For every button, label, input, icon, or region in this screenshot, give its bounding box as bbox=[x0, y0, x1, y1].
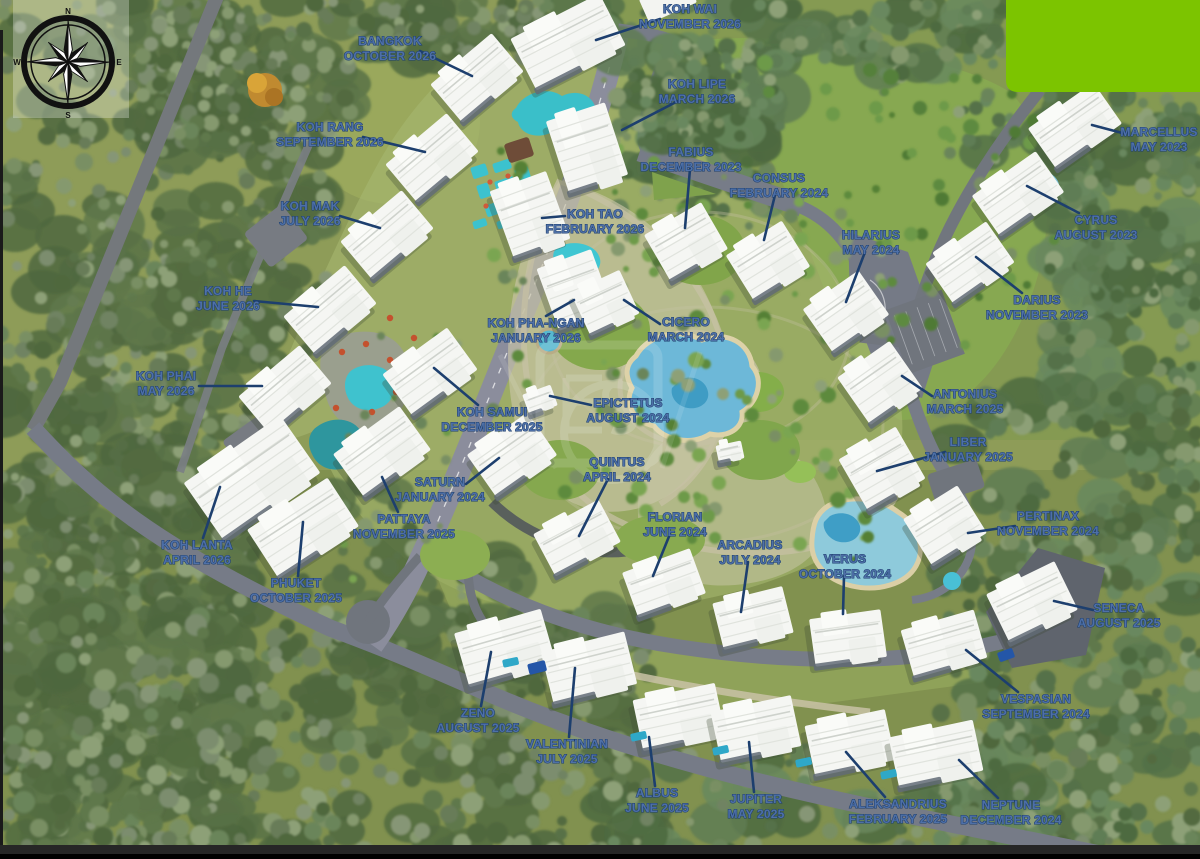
svg-text:APRIL 2024: APRIL 2024 bbox=[583, 470, 651, 484]
svg-text:SATURN: SATURN bbox=[415, 475, 465, 489]
svg-text:VERUS: VERUS bbox=[824, 552, 866, 566]
svg-text:QUINTUS: QUINTUS bbox=[589, 455, 644, 469]
svg-text:KOH WAI: KOH WAI bbox=[663, 2, 717, 16]
svg-text:OCTOBER 2024: OCTOBER 2024 bbox=[799, 567, 891, 581]
svg-text:HILARIUS: HILARIUS bbox=[842, 228, 900, 242]
svg-text:VALENTINIAN: VALENTINIAN bbox=[526, 737, 608, 751]
svg-text:PHUKET: PHUKET bbox=[271, 576, 322, 590]
svg-text:MARCELLUS: MARCELLUS bbox=[1120, 125, 1197, 139]
svg-text:KOH MAK: KOH MAK bbox=[281, 199, 340, 213]
svg-text:ALBUS: ALBUS bbox=[636, 786, 678, 800]
svg-text:DECEMBER 2025: DECEMBER 2025 bbox=[441, 420, 542, 434]
svg-text:AUGUST 2025: AUGUST 2025 bbox=[437, 721, 520, 735]
svg-text:AUGUST 2024: AUGUST 2024 bbox=[587, 411, 670, 425]
svg-text:BANGKOK: BANGKOK bbox=[358, 34, 422, 48]
svg-text:LIBER: LIBER bbox=[950, 435, 987, 449]
svg-text:JULY 2026: JULY 2026 bbox=[279, 214, 340, 228]
svg-text:JULY 2025: JULY 2025 bbox=[536, 752, 597, 766]
svg-text:NOVEMBER 2025: NOVEMBER 2025 bbox=[353, 527, 455, 541]
svg-text:KOH HE: KOH HE bbox=[204, 284, 252, 298]
svg-text:MARCH 2025: MARCH 2025 bbox=[927, 402, 1004, 416]
svg-text:PERTINAX: PERTINAX bbox=[1017, 509, 1079, 523]
svg-text:APRIL 2026: APRIL 2026 bbox=[163, 553, 231, 567]
svg-text:DECEMBER 2024: DECEMBER 2024 bbox=[960, 813, 1061, 827]
svg-text:MAY 2023: MAY 2023 bbox=[1131, 140, 1188, 154]
svg-text:CYRUS: CYRUS bbox=[1074, 213, 1117, 227]
svg-text:NOVEMBER 2023: NOVEMBER 2023 bbox=[986, 308, 1088, 322]
svg-text:KOH LIPE: KOH LIPE bbox=[668, 77, 726, 91]
svg-text:JULY 2024: JULY 2024 bbox=[719, 553, 780, 567]
svg-text:E: E bbox=[116, 58, 122, 67]
svg-text:KOH SAMUI: KOH SAMUI bbox=[457, 405, 527, 419]
svg-text:ZENO: ZENO bbox=[461, 706, 495, 720]
svg-text:DARIUS: DARIUS bbox=[1013, 293, 1060, 307]
svg-text:ALEKSANDRIUS: ALEKSANDRIUS bbox=[849, 797, 947, 811]
svg-text:NEPTUNE: NEPTUNE bbox=[982, 798, 1041, 812]
svg-text:SEPTEMBER 2024: SEPTEMBER 2024 bbox=[982, 707, 1090, 721]
svg-text:FEBRUARY 2025: FEBRUARY 2025 bbox=[849, 812, 948, 826]
svg-text:MARCH 2026: MARCH 2026 bbox=[659, 92, 736, 106]
svg-text:SEPTEMBER 2026: SEPTEMBER 2026 bbox=[276, 135, 384, 149]
svg-text:NOVEMBER 2026: NOVEMBER 2026 bbox=[639, 17, 741, 31]
svg-text:AUGUST 2025: AUGUST 2025 bbox=[1078, 616, 1161, 630]
svg-text:JANUARY 2024: JANUARY 2024 bbox=[395, 490, 485, 504]
svg-text:FLORIAN: FLORIAN bbox=[648, 510, 703, 524]
svg-text:KOH PHA-NGAN: KOH PHA-NGAN bbox=[487, 316, 584, 330]
svg-text:AUGUST 2023: AUGUST 2023 bbox=[1055, 228, 1138, 242]
svg-text:FEBRUARY 2026: FEBRUARY 2026 bbox=[546, 222, 645, 236]
svg-text:MAY 2026: MAY 2026 bbox=[138, 384, 195, 398]
svg-text:KOH RANG: KOH RANG bbox=[297, 120, 364, 134]
svg-text:S: S bbox=[65, 111, 71, 120]
svg-text:MAY 2025: MAY 2025 bbox=[728, 807, 785, 821]
svg-text:OCTOBER 2025: OCTOBER 2025 bbox=[250, 591, 342, 605]
svg-text:MARCH 2024: MARCH 2024 bbox=[648, 330, 725, 344]
svg-text:KOH LANTA: KOH LANTA bbox=[161, 538, 233, 552]
svg-text:CICERO: CICERO bbox=[662, 315, 710, 329]
svg-text:DECEMBER 2023: DECEMBER 2023 bbox=[640, 160, 741, 174]
svg-text:JUNE 2025: JUNE 2025 bbox=[625, 801, 689, 815]
svg-text:NOVEMBER 2024: NOVEMBER 2024 bbox=[997, 524, 1099, 538]
svg-text:FABIUS: FABIUS bbox=[668, 145, 713, 159]
svg-text:PATTAYA: PATTAYA bbox=[377, 512, 430, 526]
svg-text:CONSUS: CONSUS bbox=[753, 171, 806, 185]
svg-text:ARCADIUS: ARCADIUS bbox=[718, 538, 783, 552]
svg-text:SENECA: SENECA bbox=[1093, 601, 1144, 615]
svg-text:ANTONIUS: ANTONIUS bbox=[933, 387, 997, 401]
svg-text:OCTOBER 2026: OCTOBER 2026 bbox=[344, 49, 436, 63]
svg-text:KOH TAO: KOH TAO bbox=[567, 207, 623, 221]
svg-text:N: N bbox=[65, 7, 71, 16]
svg-text:MAY 2024: MAY 2024 bbox=[843, 243, 900, 257]
svg-text:EPICTETUS: EPICTETUS bbox=[593, 396, 662, 410]
svg-text:VESPASIAN: VESPASIAN bbox=[1001, 692, 1071, 706]
svg-text:JUNE 2026: JUNE 2026 bbox=[196, 299, 260, 313]
svg-text:FEBRUARY 2024: FEBRUARY 2024 bbox=[730, 186, 829, 200]
svg-text:JANUARY 2026: JANUARY 2026 bbox=[491, 331, 581, 345]
svg-text:JUPITER: JUPITER bbox=[730, 792, 782, 806]
svg-text:JUNE 2024: JUNE 2024 bbox=[643, 525, 707, 539]
svg-text:JANUARY 2025: JANUARY 2025 bbox=[923, 450, 1013, 464]
svg-text:KOH PHAI: KOH PHAI bbox=[136, 369, 196, 383]
svg-text:W: W bbox=[13, 58, 21, 67]
